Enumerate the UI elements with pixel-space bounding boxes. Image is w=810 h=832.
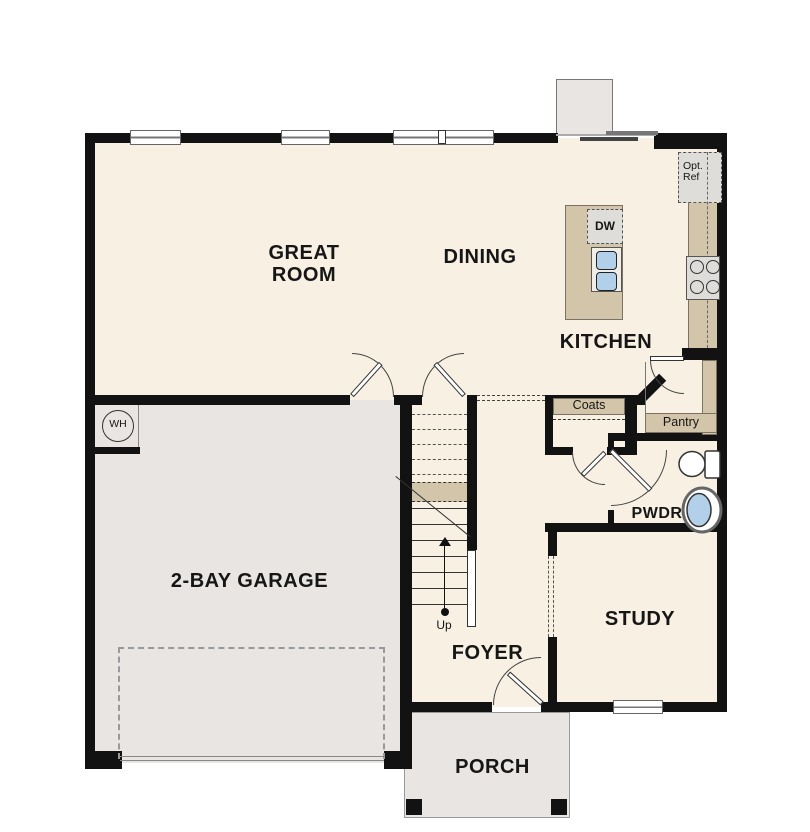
stair-tread — [412, 524, 467, 525]
stair-tread — [412, 414, 467, 415]
up-arrow-dot — [441, 608, 449, 616]
stair-landing — [412, 482, 467, 502]
wall — [625, 395, 637, 455]
coats-label: Coats — [553, 399, 625, 413]
wall — [682, 348, 727, 360]
room-label-powder: PWDR — [617, 505, 697, 522]
burner — [706, 280, 720, 294]
sliding-door-panel — [580, 137, 638, 141]
window — [130, 130, 181, 145]
window — [613, 700, 663, 714]
wall — [548, 637, 557, 702]
cased-opening — [477, 395, 545, 401]
floor-plan: Up DW Opt. Ref Coats Pantry WH — [0, 0, 810, 832]
wall — [181, 133, 281, 143]
optional-refrigerator-label: Opt. Ref — [679, 161, 721, 184]
sink-bowl — [596, 272, 617, 291]
stair-tread — [412, 508, 467, 509]
fireplace-bumpout — [556, 79, 613, 135]
pantry-edge — [645, 362, 646, 413]
wall — [467, 395, 477, 550]
garage-door-opening — [120, 756, 384, 761]
wall — [412, 702, 492, 712]
window — [281, 130, 330, 145]
room-label-dining: DINING — [420, 247, 540, 269]
sliding-door-panel — [606, 131, 658, 135]
room-label-kitchen: KITCHEN — [546, 332, 666, 354]
water-heater-label: WH — [102, 419, 134, 430]
toilet — [678, 448, 723, 482]
room-label-study: STUDY — [590, 609, 690, 631]
wall — [330, 133, 393, 143]
wall — [400, 395, 412, 769]
stair-tread — [412, 459, 467, 460]
stair-tread — [412, 474, 467, 475]
stair-tread — [412, 572, 467, 573]
wall — [85, 751, 122, 769]
porch-post — [406, 799, 422, 815]
wall — [384, 751, 412, 769]
burner — [690, 280, 704, 294]
dishwasher-label: DW — [587, 220, 623, 233]
stairs-up-label: Up — [429, 619, 459, 632]
stair-rail — [467, 550, 476, 627]
wall — [608, 510, 614, 524]
wall — [663, 702, 727, 712]
burner — [690, 260, 704, 274]
coats-rod-line — [553, 419, 625, 420]
up-arrow-line — [444, 545, 445, 612]
up-arrow-head — [439, 537, 451, 546]
wall — [557, 702, 613, 712]
pantry-label: Pantry — [645, 416, 717, 430]
wall — [88, 447, 140, 454]
room-label-great-room: GREAT ROOM — [239, 243, 369, 286]
stair-tread — [412, 588, 467, 589]
counter-depth-line — [707, 152, 708, 348]
porch-post — [551, 799, 567, 815]
wall — [545, 395, 553, 455]
burner — [706, 260, 720, 274]
door-leaf — [650, 356, 684, 361]
room-label-porch: PORCH — [445, 757, 540, 779]
wall — [541, 702, 557, 712]
room-label-foyer: FOYER — [440, 643, 535, 665]
wall — [717, 133, 727, 712]
stair-tread — [412, 444, 467, 445]
sink-bowl — [596, 251, 617, 270]
cased-opening — [548, 556, 554, 637]
wall — [548, 532, 557, 556]
room-label-garage: 2-BAY GARAGE — [137, 571, 362, 593]
wall — [85, 395, 350, 405]
stair-tread — [412, 556, 467, 557]
stair-tread — [412, 604, 467, 605]
wall — [545, 447, 573, 455]
water-heater-enclosure-line — [138, 405, 139, 447]
wall — [494, 133, 558, 143]
window-mullion — [438, 130, 446, 144]
garage-door-path — [118, 647, 385, 759]
stair-tread — [412, 429, 467, 430]
